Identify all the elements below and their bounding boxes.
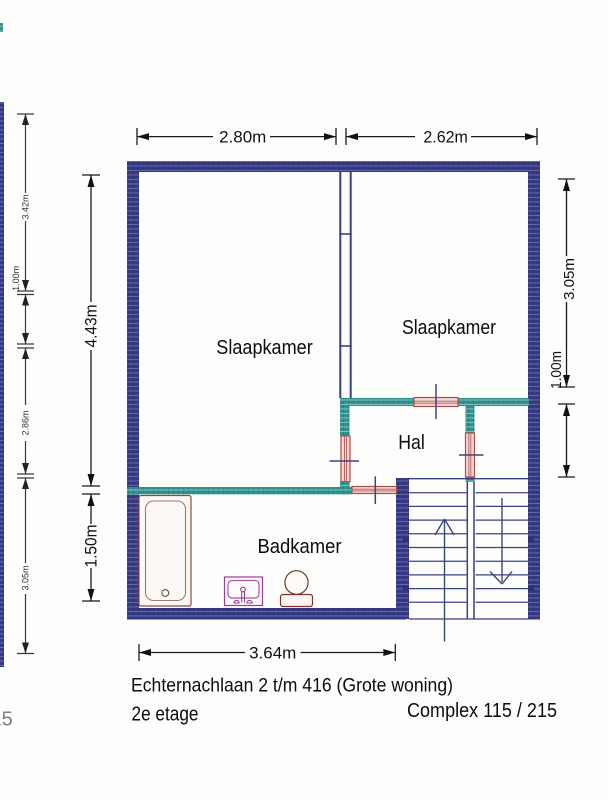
svg-text:Hal: Hal — [398, 432, 425, 454]
svg-text:3.05m: 3.05m — [21, 565, 31, 590]
svg-text:2.80m: 2.80m — [219, 127, 266, 146]
svg-text:Complex 115 / 215: Complex 115 / 215 — [407, 700, 557, 722]
svg-text:3.05m: 3.05m — [561, 258, 578, 300]
svg-text:1.00m: 1.00m — [548, 351, 565, 389]
svg-text:2.86m: 2.86m — [21, 410, 31, 435]
svg-text:Slaapkamer: Slaapkamer — [216, 337, 313, 359]
svg-text:15: 15 — [0, 709, 13, 731]
svg-text:2e etage: 2e etage — [132, 704, 199, 726]
svg-text:3.42m: 3.42m — [21, 194, 31, 219]
svg-text:Slaapkamer: Slaapkamer — [402, 317, 496, 339]
svg-text:3.64m: 3.64m — [249, 643, 296, 662]
svg-text:1.00m: 1.00m — [11, 266, 21, 291]
svg-text:1.50m: 1.50m — [82, 525, 101, 568]
svg-text:2.62m: 2.62m — [423, 127, 468, 146]
svg-text:Badkamer: Badkamer — [258, 536, 342, 558]
svg-text:Echternachlaan 2 t/m 416 (Grot: Echternachlaan 2 t/m 416 (Grote woning) — [131, 675, 453, 697]
svg-text:4.43m: 4.43m — [82, 305, 101, 348]
